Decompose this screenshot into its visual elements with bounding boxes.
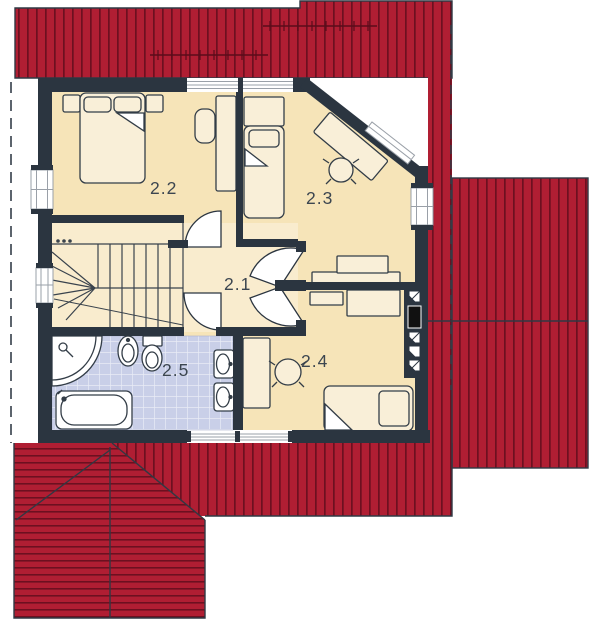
nightstand-left [63,95,80,112]
dresser [337,256,388,273]
window-bottom [187,431,292,442]
pillow [114,97,141,112]
floor-plan-drawing: 2.1 2.2 2.3 2.4 2.5 [0,0,600,622]
washbasin-2 [214,383,234,411]
room-label-2-1: 2.1 [224,274,251,294]
roof-right-wing [452,178,588,468]
cabinet-2-3 [244,97,284,126]
roof-right-strip [428,77,452,443]
window-left-lower [36,263,53,308]
window-top [183,78,297,92]
window-left-upper [31,165,53,214]
toilet [142,336,162,371]
roof-top-band [15,1,452,78]
bidet [118,336,138,366]
pillow [249,130,279,147]
room-label-2-5: 2.5 [162,360,189,380]
room-label-2-3: 2.3 [306,188,333,208]
nightstand-right [146,95,163,112]
chimney-shaft [404,285,426,378]
floor-plan-canvas: 2.1 2.2 2.3 2.4 2.5 [0,0,600,622]
bathtub [56,390,132,429]
dresser [347,290,400,316]
room-label-2-4: 2.4 [301,351,328,371]
pillow [379,391,409,426]
washbasin-1 [214,350,234,378]
desk-2-2 [216,96,236,191]
pillow [84,97,111,112]
desk-2-4 [243,338,270,408]
window-right [411,183,433,230]
dresser [310,292,343,305]
office-chair-2-2 [195,109,215,143]
room-label-2-2: 2.2 [150,178,177,198]
